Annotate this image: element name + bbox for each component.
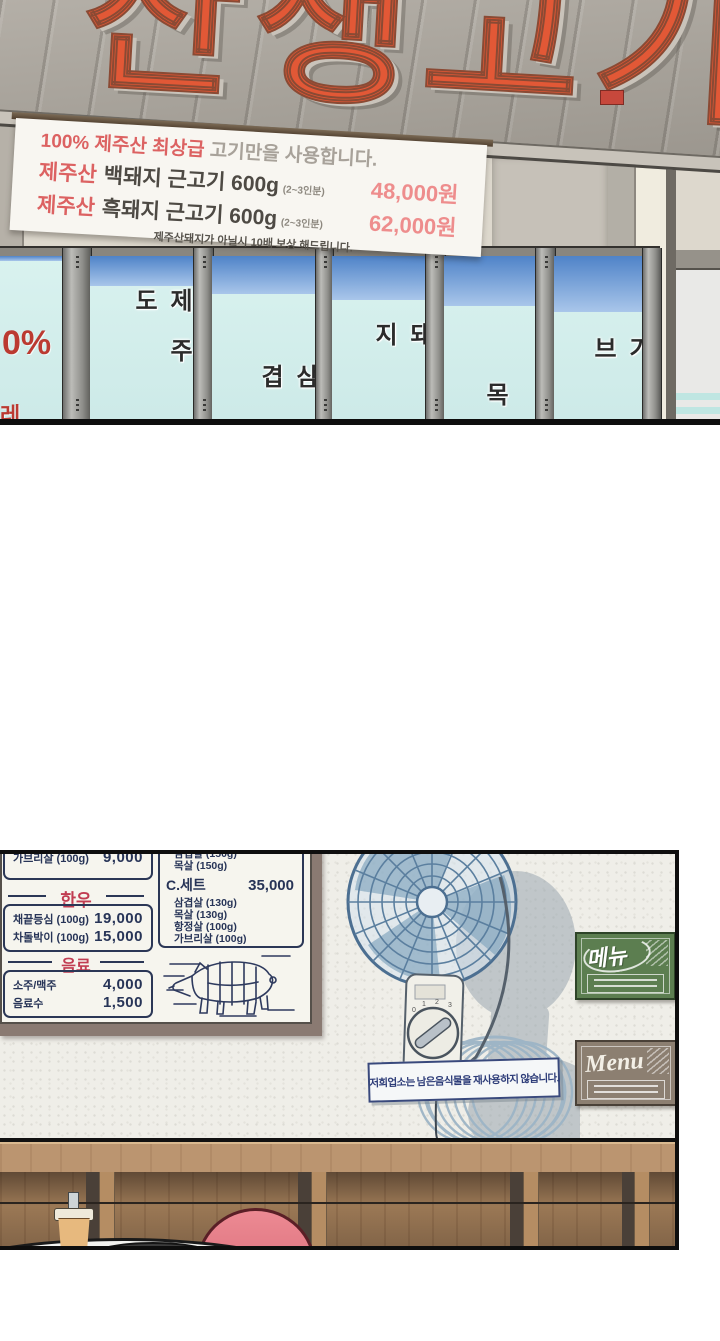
door-frame [193,248,214,419]
counter-post [523,1172,539,1248]
menu-row: 채끝등심 (100g) 19,000 [5,909,151,927]
door-frame [642,248,662,419]
right-pillar-gap [666,138,676,425]
notice-sign-text: 저희업소는 남은음식물을 재사용하지 않습니다. [369,1070,559,1090]
menu-item-name: 소주/맥주 [13,977,57,993]
door-pane-5: 가브 [554,256,642,419]
menu-set-item: 가브리살 (100g) [160,933,302,945]
panel2-bottom-border [0,1246,679,1250]
counter-post [634,1172,650,1248]
door-pane-1: 제주도 [90,256,193,419]
counter-slot [510,1172,523,1248]
storefront-sign-text: 산생고기 [78,0,720,135]
door-frame [62,248,92,419]
section-line [106,895,144,897]
menu-set-row: C.세트 35,000 [160,872,302,897]
plaque-korean-text: 메뉴 [584,938,628,975]
glass-text-samgyeop: 삼겹 [252,364,322,419]
menu-row: 음료수 1,500 [5,993,151,1011]
menu-board-frame: 가브리살 (100g) 9,000 한우 채끝등심 (100g) 19,000 … [0,850,322,1036]
menu-item-price: 4,000 [103,976,143,993]
menu-set-item: 목살 (130g) [160,909,302,921]
recessed-wall-panel [492,150,608,252]
fan-dial-number: 3 [448,1002,452,1009]
door-frame [425,248,446,419]
menu-set-item: 삼겹살 (130g) [160,897,302,909]
menu-row: 차돌박이 (100g) 15,000 [5,927,151,945]
panel-interior: 0 1 2 3 가브리살 (100g) 9,000 한우 [0,850,679,1250]
door-pane-4: 목 [444,256,535,419]
glass-text-jejudo: 제주도 [126,288,196,419]
counter-post [311,1172,327,1248]
menu-set-price: 35,000 [248,877,294,894]
panel2-right-border [675,850,679,1250]
plaque-decoration [646,940,668,966]
awning-light-fixture [600,90,624,105]
menu-item-name: 채끝등심 (100g) [13,911,89,927]
menu-item-price: 15,000 [94,928,143,945]
plaque-english-text: Menu [584,1048,644,1079]
menu-box-drinks: 소주/맥주 4,000 음료수 1,500 [3,970,153,1018]
menu-item-name: 음료수 [13,995,43,1011]
banner-portion: (2~3인분) [282,180,325,197]
menu-plaque-english: Menu [575,1040,677,1106]
banner-origin: 제주산 [36,188,96,221]
menu-box-hanwoo: 채끝등심 (100g) 19,000 차돌박이 (100g) 15,000 [3,904,153,952]
banner-price: 62,000원 [368,206,457,243]
section-line [8,895,46,897]
banner-origin: 제주산 [38,155,98,188]
banner-price: 48,000원 [370,173,459,210]
banner-portion: (2~3인분) [281,213,324,230]
notice-sign: 저희업소는 남은음식물을 재사용하지 않습니다. [367,1057,560,1102]
counter-slot [622,1172,634,1248]
menu-set-item: 항정살 (100g) [160,921,302,933]
menu-item-price: 19,000 [94,910,143,927]
right-side-window-blinds [676,393,720,419]
pig-cuts-diagram [162,950,302,1022]
section-line [100,961,144,963]
door-frame [535,248,556,419]
panel-storefront: 0% 레 제주도 삼겹 돼지 목 [0,0,720,425]
plaque-caption-box [587,1080,665,1099]
menu-box-set: 차돌박이 (150g) 삼겹살 (150g) 목살 (150g) C.세트 35… [158,850,304,948]
counter-rail-line [0,1202,679,1204]
webtoon-page: 0% 레 제주도 삼겹 돼지 목 [0,0,720,1341]
panel1-bottom-border [0,419,720,425]
menu-item-name: 차돌박이 (100g) [13,929,89,945]
menu-set-label: C.세트 [166,875,206,895]
menu-item-price: 1,500 [103,994,143,1011]
panel2-top-border [0,850,679,854]
counter-post [99,1172,115,1248]
fan-dial-number: 0 [412,1007,416,1014]
fan-dial-number: 1 [422,1001,426,1008]
menu-row: 소주/맥주 4,000 [5,975,151,993]
menu-plaque-korean: 메뉴 [575,932,676,1000]
door-pane-0: 0% 레 [0,256,62,419]
door-pane-2: 삼겹 [212,256,315,419]
menu-item: 목살 (150g) [160,860,302,872]
door-pane-3: 돼지 [332,256,425,419]
plaque-decoration [647,1048,669,1074]
fan-dial-number: 2 [435,999,439,1006]
fan-body: 0 1 2 3 [403,974,463,1073]
plaque-caption-box [587,974,664,993]
section-line [8,961,52,963]
menu-box-top: 가브리살 (100g) 9,000 [3,850,153,880]
menu-board: 가브리살 (100g) 9,000 한우 채끝등심 (100g) 19,000 … [0,850,312,1024]
counter-front [0,1142,679,1174]
right-side-window-bar [676,250,720,270]
glass-text-percent: 0% [2,324,51,363]
